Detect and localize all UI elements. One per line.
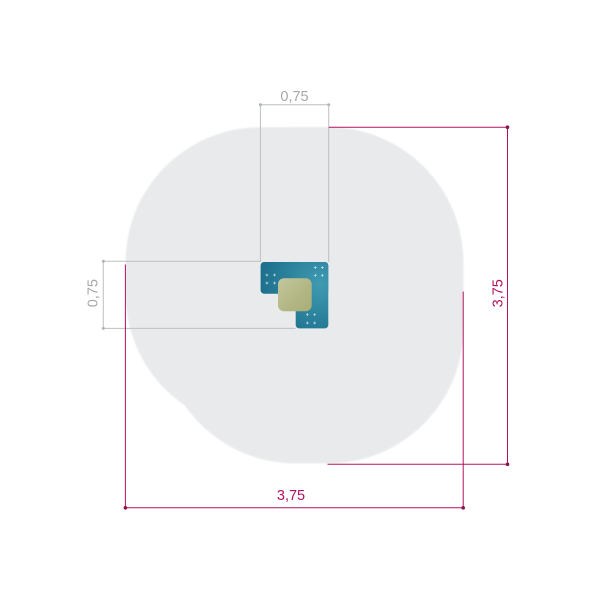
svg-text:0,75: 0,75 [280, 89, 308, 105]
svg-text:0,75: 0,75 [86, 279, 102, 307]
svg-text:3,75: 3,75 [277, 488, 305, 504]
svg-text:3,75: 3,75 [490, 279, 506, 307]
